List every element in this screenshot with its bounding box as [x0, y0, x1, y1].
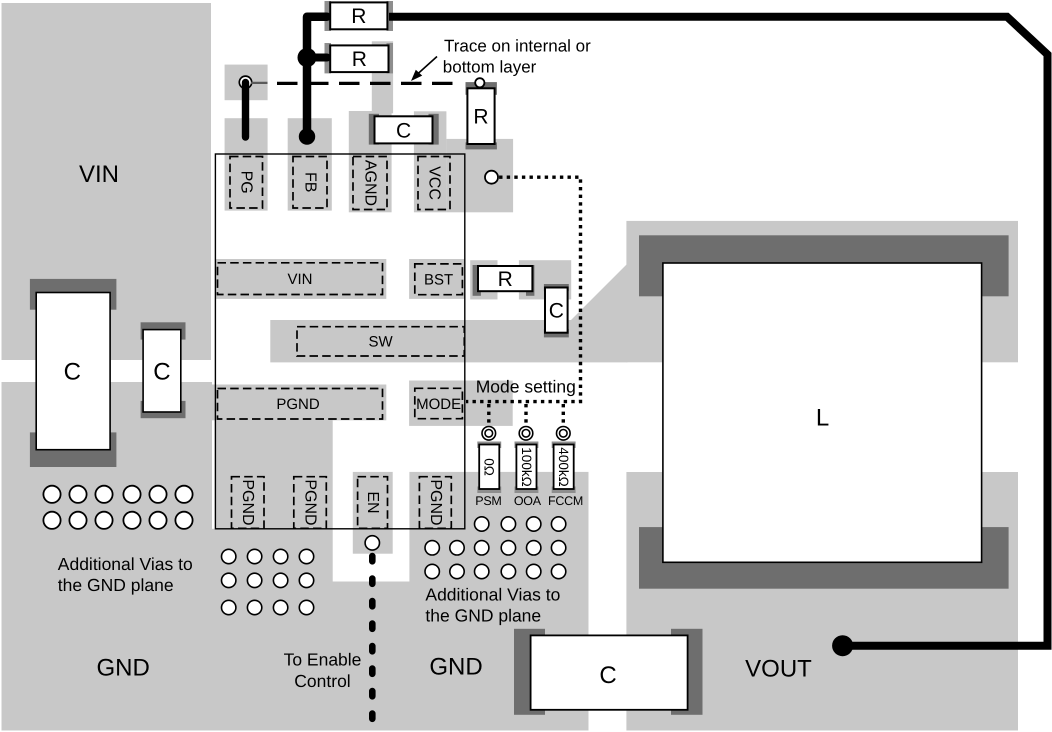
svg-text:FCCM: FCCM — [548, 494, 583, 508]
svg-text:Additional Vias to: Additional Vias to — [425, 585, 560, 605]
svg-text:OOA: OOA — [514, 494, 542, 508]
svg-text:Mode setting: Mode setting — [476, 377, 576, 397]
svg-text:PGND: PGND — [427, 479, 444, 525]
svg-text:VCC: VCC — [426, 166, 443, 200]
svg-text:R: R — [473, 106, 488, 129]
svg-text:PGND: PGND — [239, 479, 256, 525]
svg-text:VIN: VIN — [287, 271, 312, 288]
svg-text:100kΩ: 100kΩ — [519, 447, 534, 486]
svg-text:AGND: AGND — [362, 160, 379, 206]
svg-text:VIN: VIN — [79, 161, 119, 188]
svg-text:C: C — [396, 119, 411, 142]
svg-text:C: C — [64, 359, 81, 386]
svg-text:400kΩ: 400kΩ — [556, 447, 571, 486]
svg-text:C: C — [549, 299, 564, 322]
svg-text:R: R — [352, 48, 367, 71]
svg-text:L: L — [816, 405, 829, 432]
svg-text:PSM: PSM — [475, 494, 501, 508]
svg-text:PGND: PGND — [276, 396, 320, 413]
svg-text:C: C — [599, 662, 616, 689]
svg-text:R: R — [498, 268, 513, 291]
svg-text:C: C — [153, 358, 170, 385]
svg-text:BST: BST — [424, 272, 453, 289]
svg-text:EN: EN — [364, 491, 381, 513]
svg-text:Additional Vias to: Additional Vias to — [58, 554, 193, 574]
svg-text:bottom layer: bottom layer — [443, 57, 537, 76]
svg-text:the GND plane: the GND plane — [58, 575, 174, 595]
svg-text:FB: FB — [302, 172, 319, 192]
svg-text:To Enable: To Enable — [284, 650, 362, 670]
svg-text:Trace on internal or: Trace on internal or — [444, 37, 591, 56]
svg-text:SW: SW — [369, 334, 394, 351]
svg-text:PGND: PGND — [302, 479, 319, 525]
svg-text:R: R — [351, 5, 366, 28]
svg-text:0Ω: 0Ω — [482, 458, 497, 476]
svg-text:GND: GND — [429, 654, 482, 681]
svg-text:PG: PG — [238, 171, 255, 194]
svg-text:GND: GND — [97, 655, 150, 682]
svg-text:VOUT: VOUT — [745, 656, 812, 683]
svg-text:Control: Control — [294, 671, 350, 691]
svg-text:MODE: MODE — [416, 396, 461, 413]
svg-text:the GND plane: the GND plane — [425, 606, 541, 626]
